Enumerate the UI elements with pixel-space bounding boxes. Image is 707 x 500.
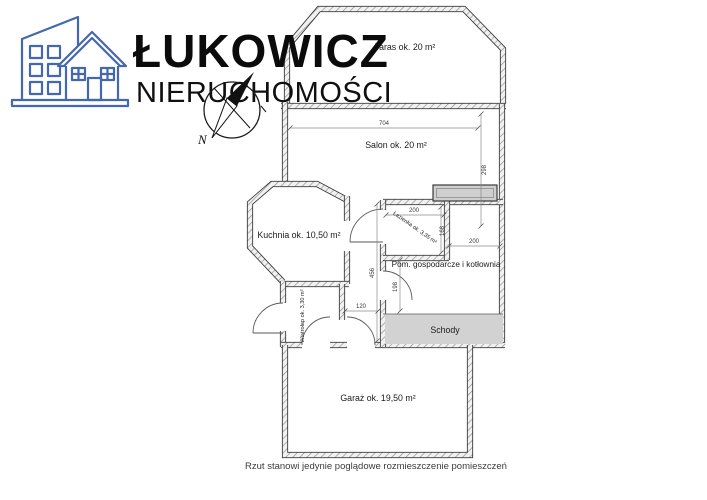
bathroom-door-arc	[350, 209, 383, 242]
logo: ŁUKOWICZ NIERUCHOMOŚCI N	[0, 0, 430, 160]
entry-door-arc	[253, 303, 283, 333]
room-label-lazienka: Łazienka ok. 3,35 m²	[392, 211, 438, 246]
hall-door-arc-1	[302, 317, 330, 345]
dim-hall-width: 120	[356, 304, 367, 310]
dim-pom-width: 200	[469, 239, 480, 245]
room-label-schody: Schody	[430, 325, 460, 335]
dim-hall-depth: 456	[370, 267, 376, 278]
room-label-pom-gospodarcze: Pom. gospodarcze i kotłownia	[392, 260, 501, 269]
buildings-icon	[6, 6, 134, 110]
hall-door-arc-2	[347, 317, 375, 345]
disclaimer-text: Rzut stanowi jedynie poglądowe rozmieszc…	[245, 461, 507, 472]
room-label-garaz: Garaż ok. 19,50 m²	[340, 393, 415, 403]
chimney-block	[433, 185, 497, 201]
room-label-wiatrolap: Wiatrołap ok. 3,30 m²	[300, 289, 306, 342]
dim-lazienka-depth: 168	[440, 225, 446, 236]
dim-lazienka-width: 200	[409, 208, 420, 214]
compass-north-label: N	[197, 132, 208, 147]
dim-salon-depth: 298	[482, 164, 488, 175]
room-label-kuchnia: Kuchnia ok. 10,50 m²	[257, 230, 340, 240]
compass-icon: N	[190, 66, 280, 156]
dim-pom-depth: 198	[393, 281, 399, 292]
